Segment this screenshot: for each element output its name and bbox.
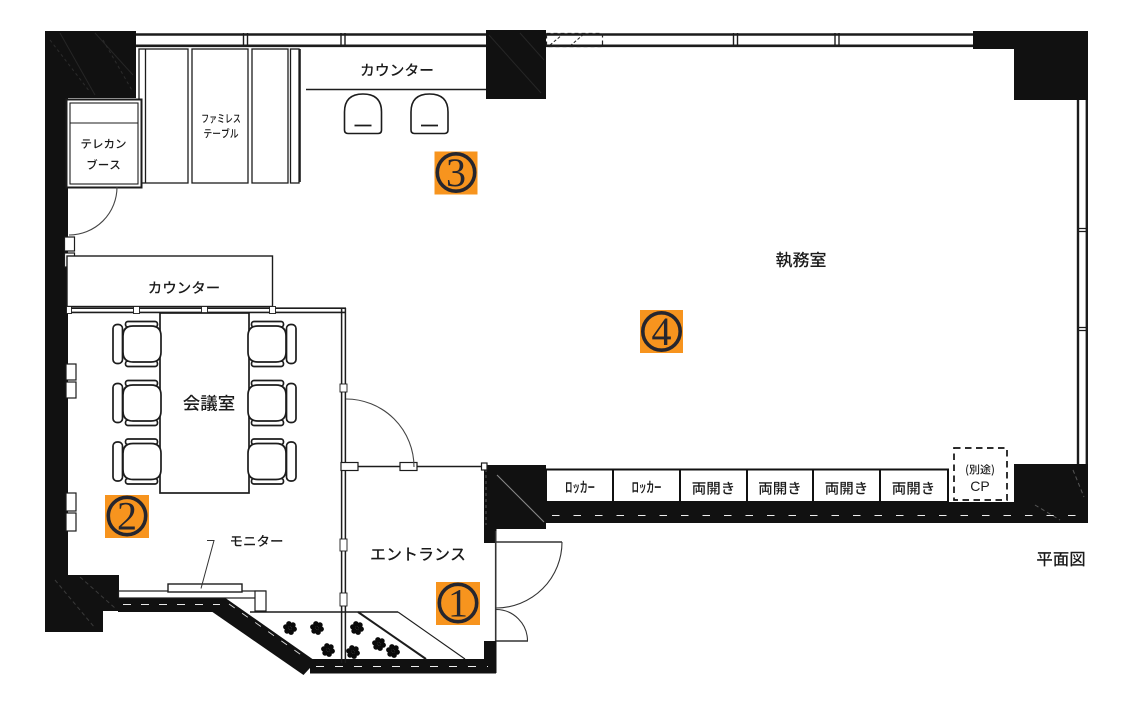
svg-text:2: 2 — [117, 494, 137, 539]
svg-text:3: 3 — [446, 150, 466, 195]
svg-text:1: 1 — [448, 581, 468, 626]
svg-text:CP: CP — [970, 478, 989, 494]
svg-text:4: 4 — [652, 309, 672, 354]
